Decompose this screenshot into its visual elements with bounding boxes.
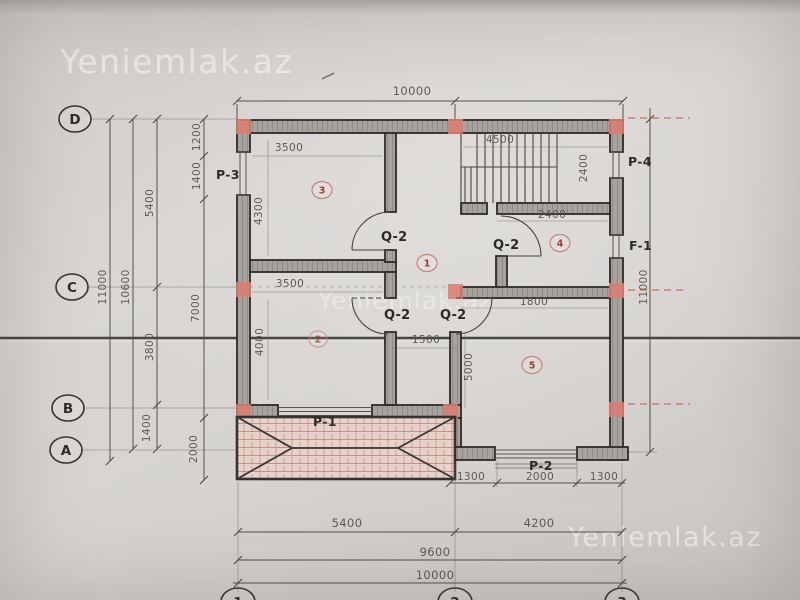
grid-bubble-d: D — [69, 112, 80, 128]
dim-left-2000: 2000 — [188, 435, 200, 463]
grid-bubble-b: B — [63, 401, 73, 417]
dim-bottom-9600: 9600 — [420, 545, 451, 559]
dim-room4-bottom: 1800 — [520, 296, 548, 308]
dim-right-11000: 11000 — [638, 269, 650, 304]
dim-room2-height: 4000 — [254, 328, 266, 356]
dim-veranda-2000: 2000 — [526, 471, 554, 483]
floor-plan-photo: Yeniemlak.az Yeniemlak.az Yeniemlak.az 1… — [0, 0, 800, 600]
dim-room2-top: 3500 — [276, 278, 304, 290]
watermark-top-left: Yeniemlak.az — [59, 42, 293, 81]
dim-room4-top: 2400 — [538, 209, 566, 221]
dim-veranda-1300a: 1300 — [457, 471, 485, 483]
grid-bubble-3: 3 — [617, 595, 626, 600]
dim-stair-width: 2400 — [578, 154, 590, 182]
room-number-4: 4 — [557, 239, 564, 250]
floor-plan-drawing: Yeniemlak.az Yeniemlak.az Yeniemlak.az 1… — [0, 0, 800, 600]
dim-left-5400: 5400 — [144, 189, 156, 217]
label-q2-room2: Q-2 — [384, 308, 410, 323]
dim-bottom-5400: 5400 — [332, 516, 363, 530]
dim-left-11000: 11000 — [97, 269, 109, 304]
interior-dim-lines — [252, 140, 608, 408]
grid-bubble-2: 2 — [450, 595, 459, 600]
grid-lines — [82, 119, 610, 450]
label-f1: F-1 — [629, 238, 652, 253]
grid-bubble-a: A — [61, 443, 72, 459]
label-q2-room4: Q-2 — [493, 238, 519, 253]
dim-left-3800: 3800 — [144, 333, 156, 361]
dim-veranda-1300b: 1300 — [590, 471, 618, 483]
grid-bubbles-cols — [221, 588, 639, 600]
opening-f1 — [610, 235, 623, 258]
dim-left-7000: 7000 — [190, 294, 202, 322]
dim-left-1400b: 1400 — [191, 162, 203, 190]
label-p3: P-3 — [216, 167, 240, 182]
dim-bottom-10000: 10000 — [416, 568, 455, 582]
room-number-3: 3 — [319, 186, 326, 197]
room-number-5: 5 — [529, 361, 536, 372]
dim-left-1400: 1400 — [141, 414, 153, 442]
label-q2-room3: Q-2 — [381, 230, 407, 245]
label-p1: P-1 — [313, 414, 337, 429]
dim-room5-height: 5000 — [463, 353, 475, 381]
dim-hall-width: 1500 — [412, 334, 440, 346]
room-number-2: 2 — [315, 335, 322, 346]
porch-p1 — [237, 417, 455, 479]
grid-bubble-1: 1 — [233, 595, 242, 600]
dim-room3-height: 4300 — [253, 197, 265, 225]
dim-room3-width: 3500 — [275, 142, 303, 154]
dim-bottom-4200: 4200 — [524, 516, 555, 530]
watermark-bottom-right: Yeniemlak.az — [567, 522, 762, 553]
label-q2-room5: Q-2 — [440, 308, 466, 323]
dim-stair-top: 4500 — [486, 134, 514, 146]
label-p4: P-4 — [628, 154, 652, 169]
window-p4 — [610, 152, 623, 178]
grid-bubble-c: C — [67, 280, 77, 296]
room-number-1: 1 — [424, 259, 431, 270]
dim-left-1200: 1200 — [191, 123, 203, 151]
dim-top-10000: 10000 — [393, 84, 432, 98]
paper-fold-line — [0, 338, 800, 341]
dim-left-10600: 10600 — [120, 269, 132, 304]
